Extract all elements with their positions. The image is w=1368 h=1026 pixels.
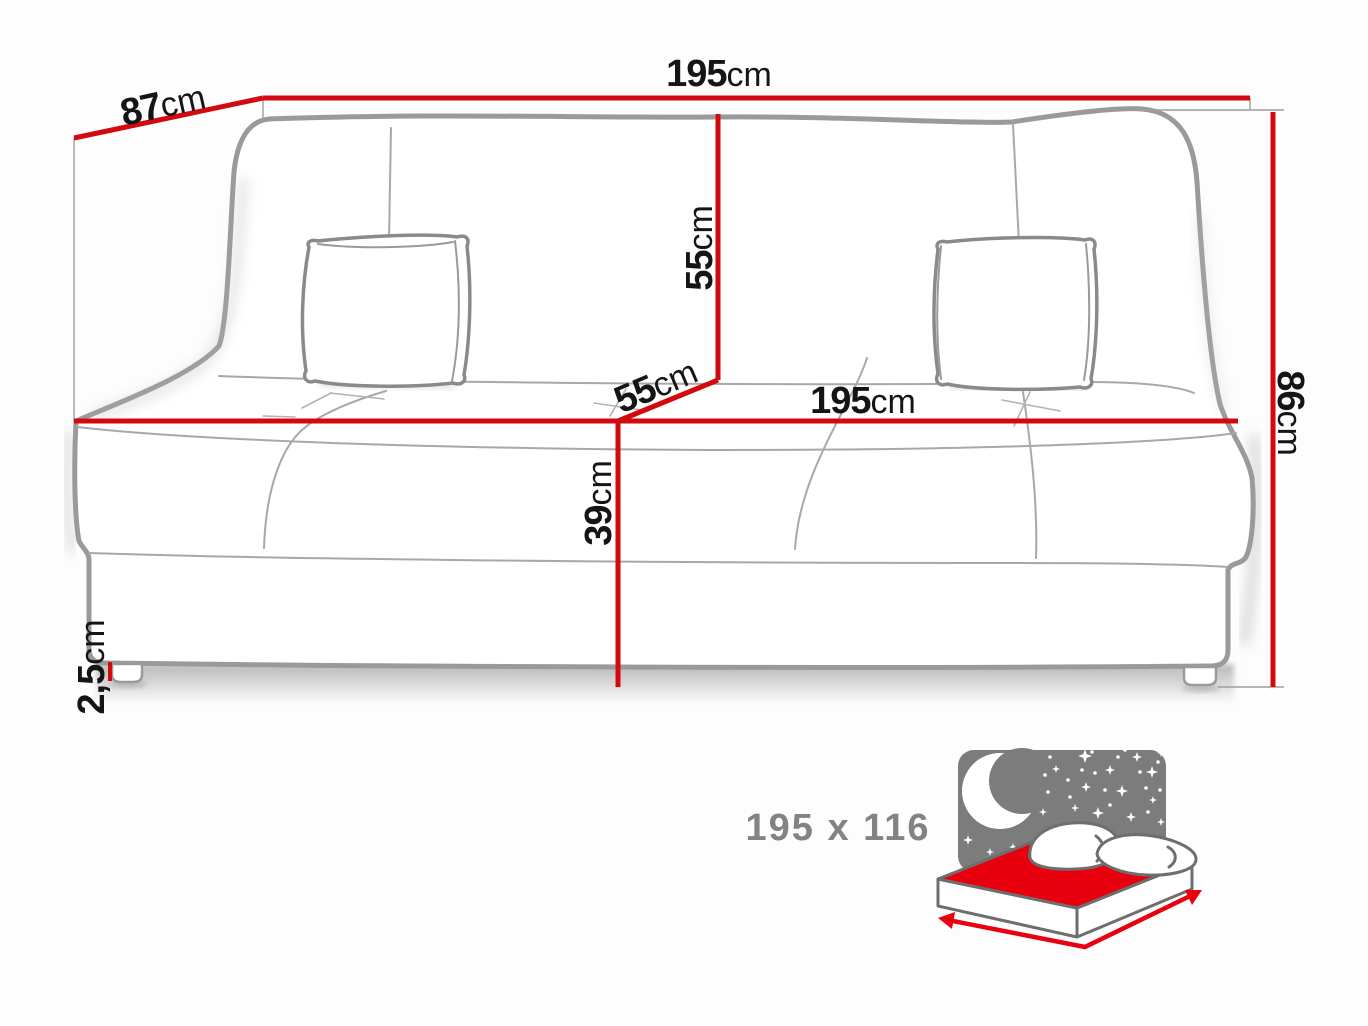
sofa-dimension-diagram: 195cm 87cm 55cm 55cm 195cm 86cm 39cm 2,5… [0, 0, 1368, 1026]
right-cushion [934, 238, 1097, 390]
dim-unit: cm [727, 56, 772, 94]
dim-unit: cm [682, 205, 720, 250]
dim-value: 39 [578, 506, 620, 546]
left-cushion [302, 235, 469, 386]
dim-value: 195 [810, 380, 870, 422]
dim-value: 55 [679, 251, 721, 291]
dim-unit: cm [1270, 410, 1308, 455]
dim-value: 2,5 [71, 665, 113, 715]
dim-label-seat-width: 195cm [810, 382, 916, 420]
dim-label-backrest-height: 55cm [681, 205, 719, 291]
dim-label-total-height: 86cm [1271, 370, 1309, 456]
dim-unit: cm [581, 460, 619, 505]
dim-unit: cm [74, 619, 112, 664]
dim-label-top-width: 195cm [666, 55, 772, 93]
sleeping-area-size-label: 195 x 116 [746, 809, 931, 847]
dim-value: 195 [666, 53, 726, 95]
dim-unit: cm [871, 383, 916, 421]
dim-label-leg-height: 2,5cm [73, 619, 111, 714]
dim-label-seat-height: 39cm [580, 460, 618, 546]
diagram-canvas [0, 0, 1368, 1026]
night-sleeping-area-bed-icon [938, 748, 1202, 947]
dim-value: 86 [1269, 370, 1311, 410]
